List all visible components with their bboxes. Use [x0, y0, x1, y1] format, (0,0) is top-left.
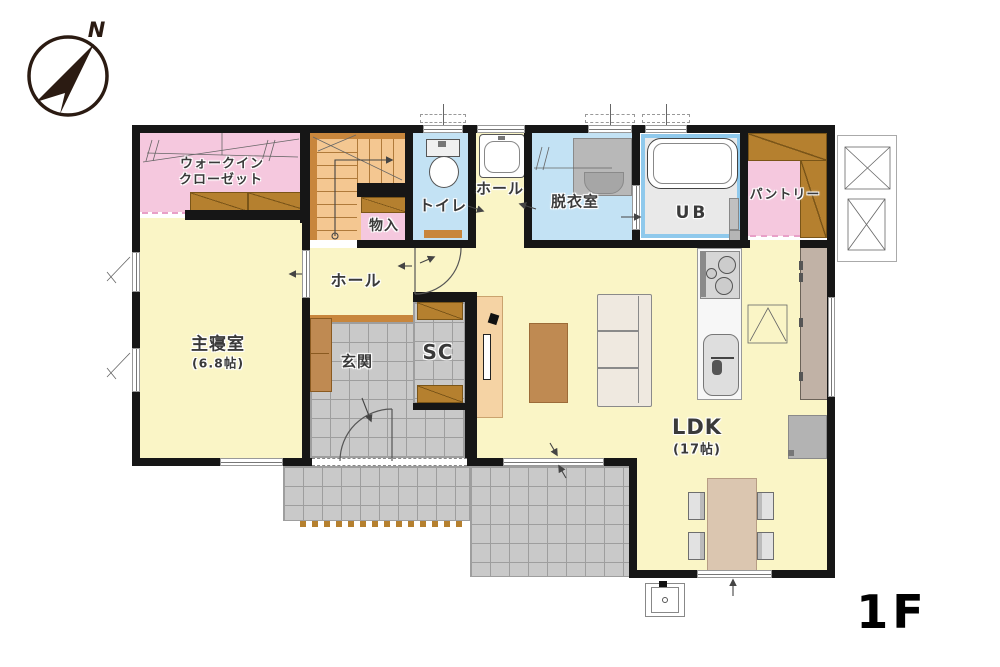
- room-label-wic-line2: クローゼット: [179, 169, 263, 188]
- room-label-shoe-closet: SC: [422, 340, 453, 364]
- room-label-storage: 物入: [369, 215, 399, 235]
- casement-mark-1: [107, 257, 130, 281]
- laundry-door-arrow: [520, 204, 536, 209]
- wic-hanger-mark: [146, 140, 152, 161]
- casement-mark-2: [107, 353, 130, 377]
- toilet-door-arrow: [468, 206, 483, 211]
- room-label-ldk-area: (17帖): [673, 439, 721, 458]
- room-label-unit-bath: UB: [676, 203, 709, 223]
- room-label-pantry: パントリー: [750, 184, 821, 203]
- casement-mark-2b: [107, 368, 116, 379]
- room-label-bedroom: 主寝室: [191, 330, 245, 355]
- room-label-upper-hall: ホール: [476, 178, 524, 199]
- floor-plan-1f: N ウォークイン クローゼット 物入 トイレ ホール 脱衣室 UB パントリー …: [0, 0, 1000, 667]
- hall-ldk-door-arc: [415, 248, 461, 294]
- ldk-door-arrow: [420, 257, 434, 263]
- terrace-arrow-2: [559, 466, 566, 478]
- casement-mark-1b: [107, 272, 116, 283]
- laundry-hanger-mark: [543, 147, 549, 170]
- refrigerator-symbol-lines: [750, 308, 786, 341]
- annotation-overlay: [0, 0, 1000, 667]
- room-label-entrance: 玄関: [341, 351, 373, 372]
- floor-label: 1F: [856, 585, 927, 639]
- wic-hanger-mark: [153, 140, 159, 161]
- room-label-bedroom-area: (6.8帖): [192, 353, 244, 372]
- refrigerator-symbol: [748, 305, 787, 343]
- room-label-toilet: トイレ: [419, 195, 467, 216]
- compass-north-label: N: [88, 18, 107, 42]
- room-label-hall: ホール: [330, 267, 381, 291]
- compass: [10, 12, 140, 142]
- entrance-door-arc: [340, 409, 392, 461]
- laundry-hanger-mark: [536, 147, 542, 170]
- terrace-arrow-1: [550, 443, 557, 455]
- room-label-laundry: 脱衣室: [551, 191, 599, 212]
- room-label-ldk: LDK: [672, 415, 722, 439]
- stairs-diagonal: [313, 137, 402, 180]
